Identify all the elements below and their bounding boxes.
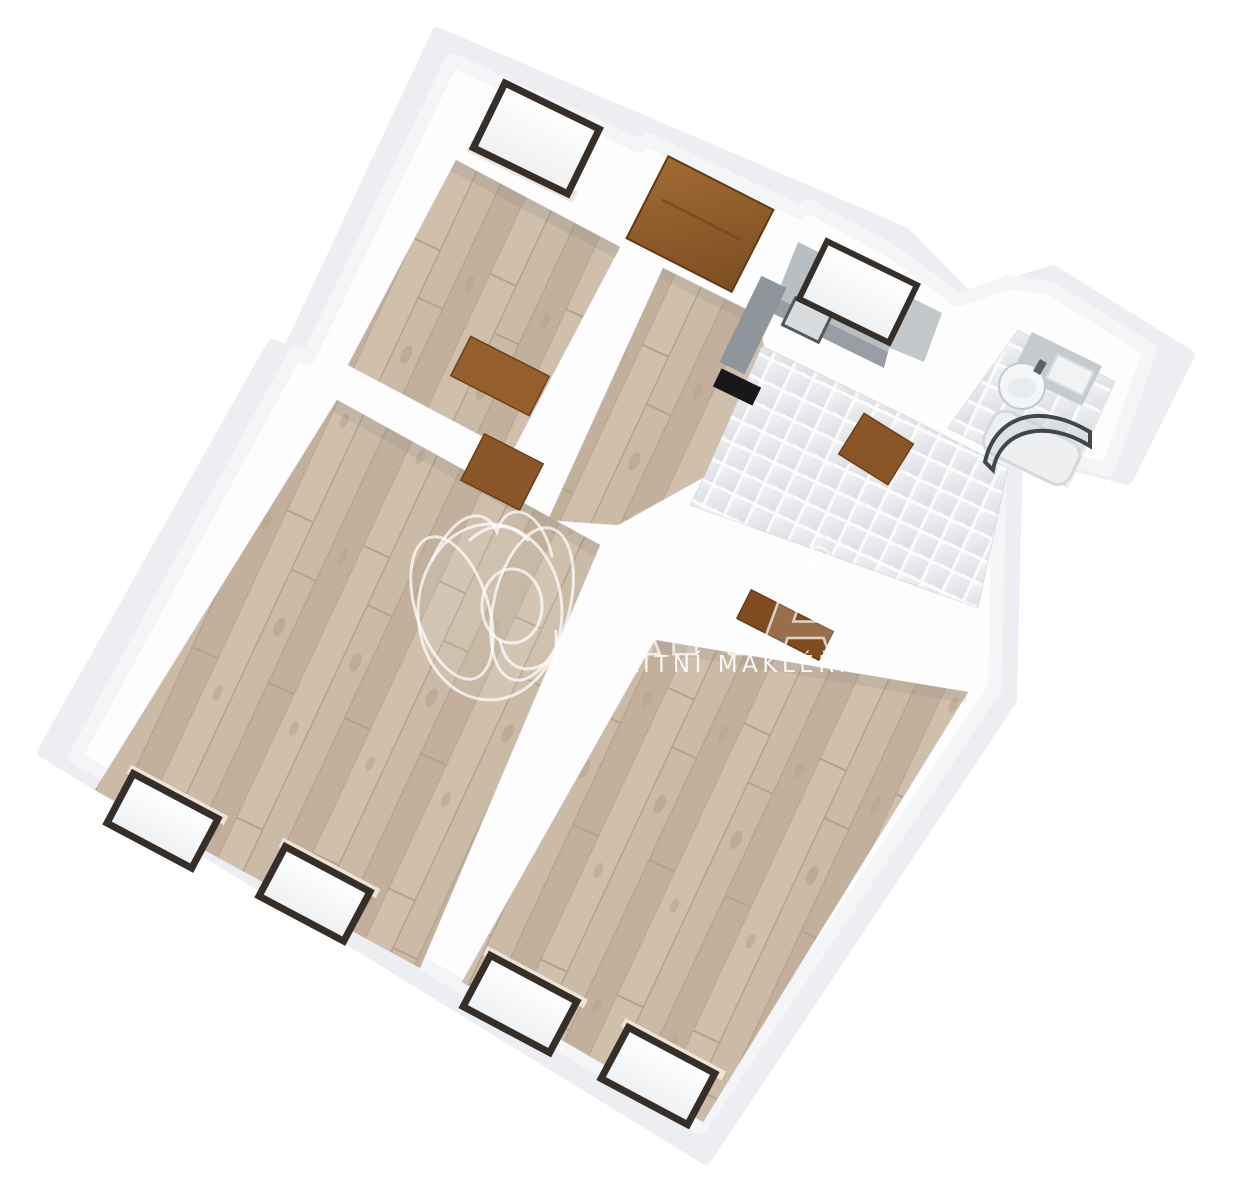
registered-mark-icon: ® [800,540,836,581]
watermark: ARA ® REALITNÍ MAKLÉŘI [395,512,855,700]
bathroom-washbasin-bowl [1008,378,1036,398]
floor-plan-image: ARA ® REALITNÍ MAKLÉŘI [0,0,1254,1200]
brand-tagline: REALITNÍ MAKLÉŘI [566,650,850,678]
floor-plan-svg: ARA ® REALITNÍ MAKLÉŘI [0,0,1254,1200]
